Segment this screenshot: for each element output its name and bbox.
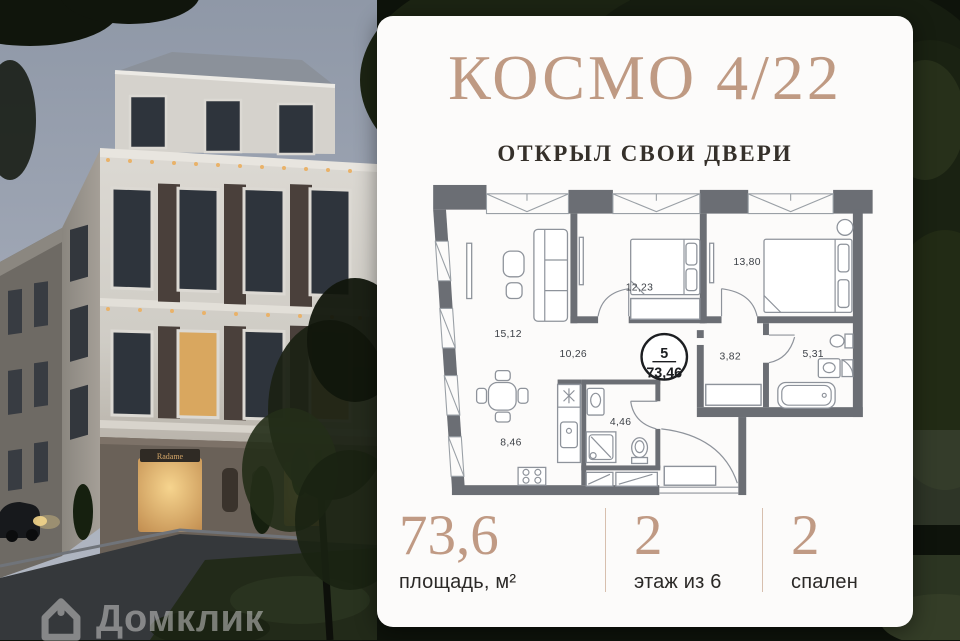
flat-badge: 5 73,46 bbox=[642, 334, 687, 381]
stat-floor-label: этаж из 6 bbox=[634, 571, 762, 594]
wardrobes bbox=[664, 384, 761, 485]
room-area-label: 3,82 bbox=[720, 352, 741, 363]
room-area-label: 5,31 bbox=[803, 349, 824, 360]
project-title: КОСМО 4/22 bbox=[377, 46, 913, 110]
stat-area-value: 73,6 bbox=[399, 506, 605, 566]
watermark-brand: Домклик bbox=[96, 591, 264, 638]
stat-floor: 2 этаж из 6 bbox=[606, 506, 762, 594]
building-attic bbox=[115, 52, 335, 154]
living-room-furniture bbox=[467, 229, 568, 321]
stat-area-label: площадь, м² bbox=[399, 571, 605, 594]
bathroom1-fixtures bbox=[778, 334, 853, 408]
room-area-label: 10,26 bbox=[560, 349, 587, 360]
room-area-label: 13,80 bbox=[733, 257, 760, 268]
project-subtitle: ОТКРЫЛ СВОИ ДВЕРИ bbox=[377, 142, 913, 165]
storefront-sign: Radame bbox=[157, 452, 184, 461]
bedroom1-furniture bbox=[579, 237, 699, 319]
floor-plan: 15,12 12,23 13,80 10,26 3,82 5,31 8,46 4… bbox=[391, 182, 899, 500]
room-area-label: 12,23 bbox=[626, 283, 653, 294]
stat-floor-value: 2 bbox=[634, 506, 762, 566]
flat-number: 5 bbox=[660, 346, 668, 362]
stat-bedrooms-label: спален bbox=[791, 571, 891, 594]
listing-card: КОСМО 4/22 ОТКРЫЛ СВОИ ДВЕРИ bbox=[377, 16, 913, 627]
room-area-label: 15,12 bbox=[494, 329, 521, 340]
bedroom2-furniture bbox=[710, 220, 853, 313]
room-area-label: 4,46 bbox=[610, 417, 631, 428]
bathroom2-fixtures bbox=[586, 388, 657, 486]
room-area-label: 8,46 bbox=[500, 438, 521, 449]
domclick-house-icon bbox=[38, 591, 84, 641]
stat-bedrooms: 2 спален bbox=[763, 506, 891, 594]
stats-row: 73,6 площадь, м² 2 этаж из 6 2 спален bbox=[377, 506, 913, 594]
flat-total-area: 73,46 bbox=[646, 366, 682, 382]
kitchen-furniture bbox=[477, 371, 581, 486]
watermark: Домклик bbox=[38, 591, 264, 641]
stat-bedrooms-value: 2 bbox=[791, 506, 891, 566]
stat-area: 73,6 площадь, м² bbox=[399, 506, 605, 594]
